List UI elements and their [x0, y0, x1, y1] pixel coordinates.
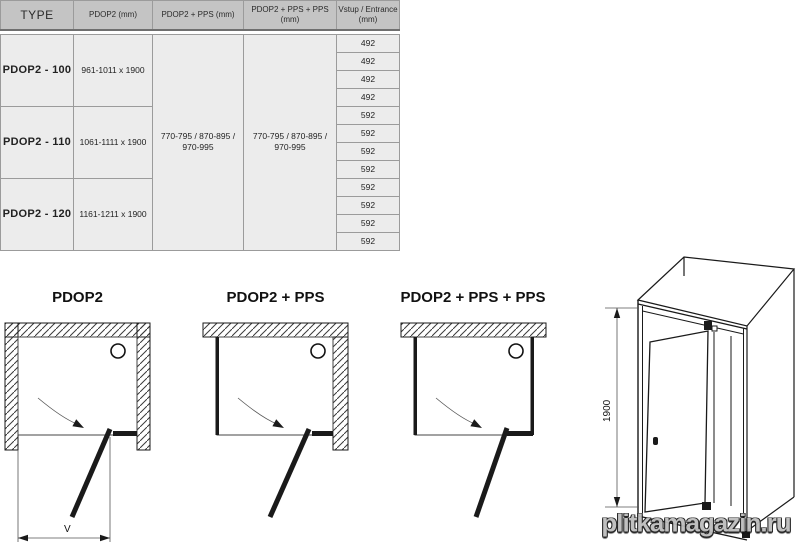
entrance-cell: 492: [337, 88, 400, 106]
pps-panel-left: [216, 337, 220, 435]
height-dim-arrow-bottom: [614, 497, 620, 507]
entrance-cell: 592: [337, 214, 400, 232]
type-cell-pdop2-120: PDOP2 - 120: [1, 178, 74, 250]
table-row: PDOP2 - 100 961-1011 x 1900 770-795 / 87…: [1, 34, 400, 52]
entrance-cell: 592: [337, 106, 400, 124]
fixed-segment: [113, 431, 137, 436]
size-cell-pdop2-120: 1161-1211 x 1900: [74, 178, 153, 250]
header-entrance: Vstup / Entrance (mm): [337, 1, 400, 30]
door-3d-view: 1900: [590, 250, 800, 544]
pps-panel-right: [531, 337, 535, 435]
header-pdop2-pps: PDOP2 + PPS (mm): [153, 1, 244, 30]
entrance-cell: 592: [337, 232, 400, 250]
right-wall: [137, 323, 150, 450]
entrance-cell: 492: [337, 52, 400, 70]
entrance-cell: 592: [337, 124, 400, 142]
diagram-pdop2-pps: [190, 280, 390, 544]
top-view-diagram-pdop2-pps: [190, 280, 390, 544]
left-wall: [5, 323, 18, 450]
top-wall: [401, 323, 546, 337]
pps-range-line1: 770-795 / 870-895 /: [161, 131, 235, 141]
door-panel-open: [476, 428, 507, 517]
top-wall: [203, 323, 348, 337]
top-wall: [5, 323, 150, 337]
fixed-segment: [507, 431, 533, 436]
header-entrance-line2: (mm): [359, 15, 378, 24]
pps-range-line2: 970-995: [182, 142, 213, 152]
size-cell-pdop2-110: 1061-1111 x 1900: [74, 106, 153, 178]
watermark-text: plitkamagazin.ru: [592, 508, 800, 538]
dim-label-v: V: [64, 524, 71, 535]
perspective-drawing: 1900: [590, 250, 800, 544]
pivot-hinge-top: [704, 321, 712, 330]
pps-panel-left: [414, 337, 418, 435]
diagram-pdop2-pps-pps: [390, 280, 590, 544]
height-dim-label: 1900: [602, 399, 613, 422]
pps-range-cell: 770-795 / 870-895 / 970-995: [153, 34, 244, 250]
dim-arrow-left: [18, 535, 28, 541]
entrance-cell: 592: [337, 160, 400, 178]
top-view-diagram-pdop2-pps-pps: [390, 280, 590, 544]
door-panel-open: [270, 429, 309, 517]
pps-pps-range-line2: 970-995: [274, 142, 305, 152]
type-cell-pdop2-110: PDOP2 - 110: [1, 106, 74, 178]
header-pdop2-pps-pps: PDOP2 + PPS + PPS (mm): [244, 1, 337, 30]
entrance-cell: 492: [337, 70, 400, 88]
entrance-cell: 592: [337, 178, 400, 196]
header-pdop2: PDOP2 (mm): [74, 1, 153, 30]
height-dim-arrow-top: [614, 308, 620, 318]
dim-arrow-right: [100, 535, 110, 541]
drain-circle: [111, 344, 125, 358]
entrance-cell: 592: [337, 142, 400, 160]
pivot-door-panel: [645, 331, 708, 512]
entrance-cell: 592: [337, 196, 400, 214]
diagram-pdop2: V: [0, 280, 190, 544]
spec-sheet-page: TYPE PDOP2 (mm) PDOP2 + PPS (mm) PDOP2 +…: [0, 0, 800, 544]
spec-table-body: PDOP2 - 100 961-1011 x 1900 770-795 / 87…: [0, 34, 400, 251]
right-wall: [333, 337, 348, 450]
top-view-diagram-pdop2: V: [0, 280, 190, 544]
size-cell-pdop2-100: 961-1011 x 1900: [74, 34, 153, 106]
entrance-cell: 492: [337, 34, 400, 52]
pps-pps-range-cell: 770-795 / 870-895 / 970-995: [244, 34, 337, 250]
fixed-segment: [312, 431, 333, 436]
door-handle: [653, 437, 658, 445]
spec-table-header: TYPE PDOP2 (mm) PDOP2 + PPS (mm) PDOP2 +…: [0, 0, 400, 31]
drain-circle: [509, 344, 523, 358]
type-cell-pdop2-100: PDOP2 - 100: [1, 34, 74, 106]
door-panel-open: [72, 429, 110, 517]
pps-pps-range-line1: 770-795 / 870-895 /: [253, 131, 327, 141]
header-type: TYPE: [1, 1, 74, 30]
drain-circle: [311, 344, 325, 358]
spec-table: TYPE PDOP2 (mm) PDOP2 + PPS (mm) PDOP2 +…: [0, 0, 399, 251]
pivot-hinge-clamp: [712, 326, 717, 331]
header-entrance-line1: Vstup / Entrance: [338, 5, 397, 14]
